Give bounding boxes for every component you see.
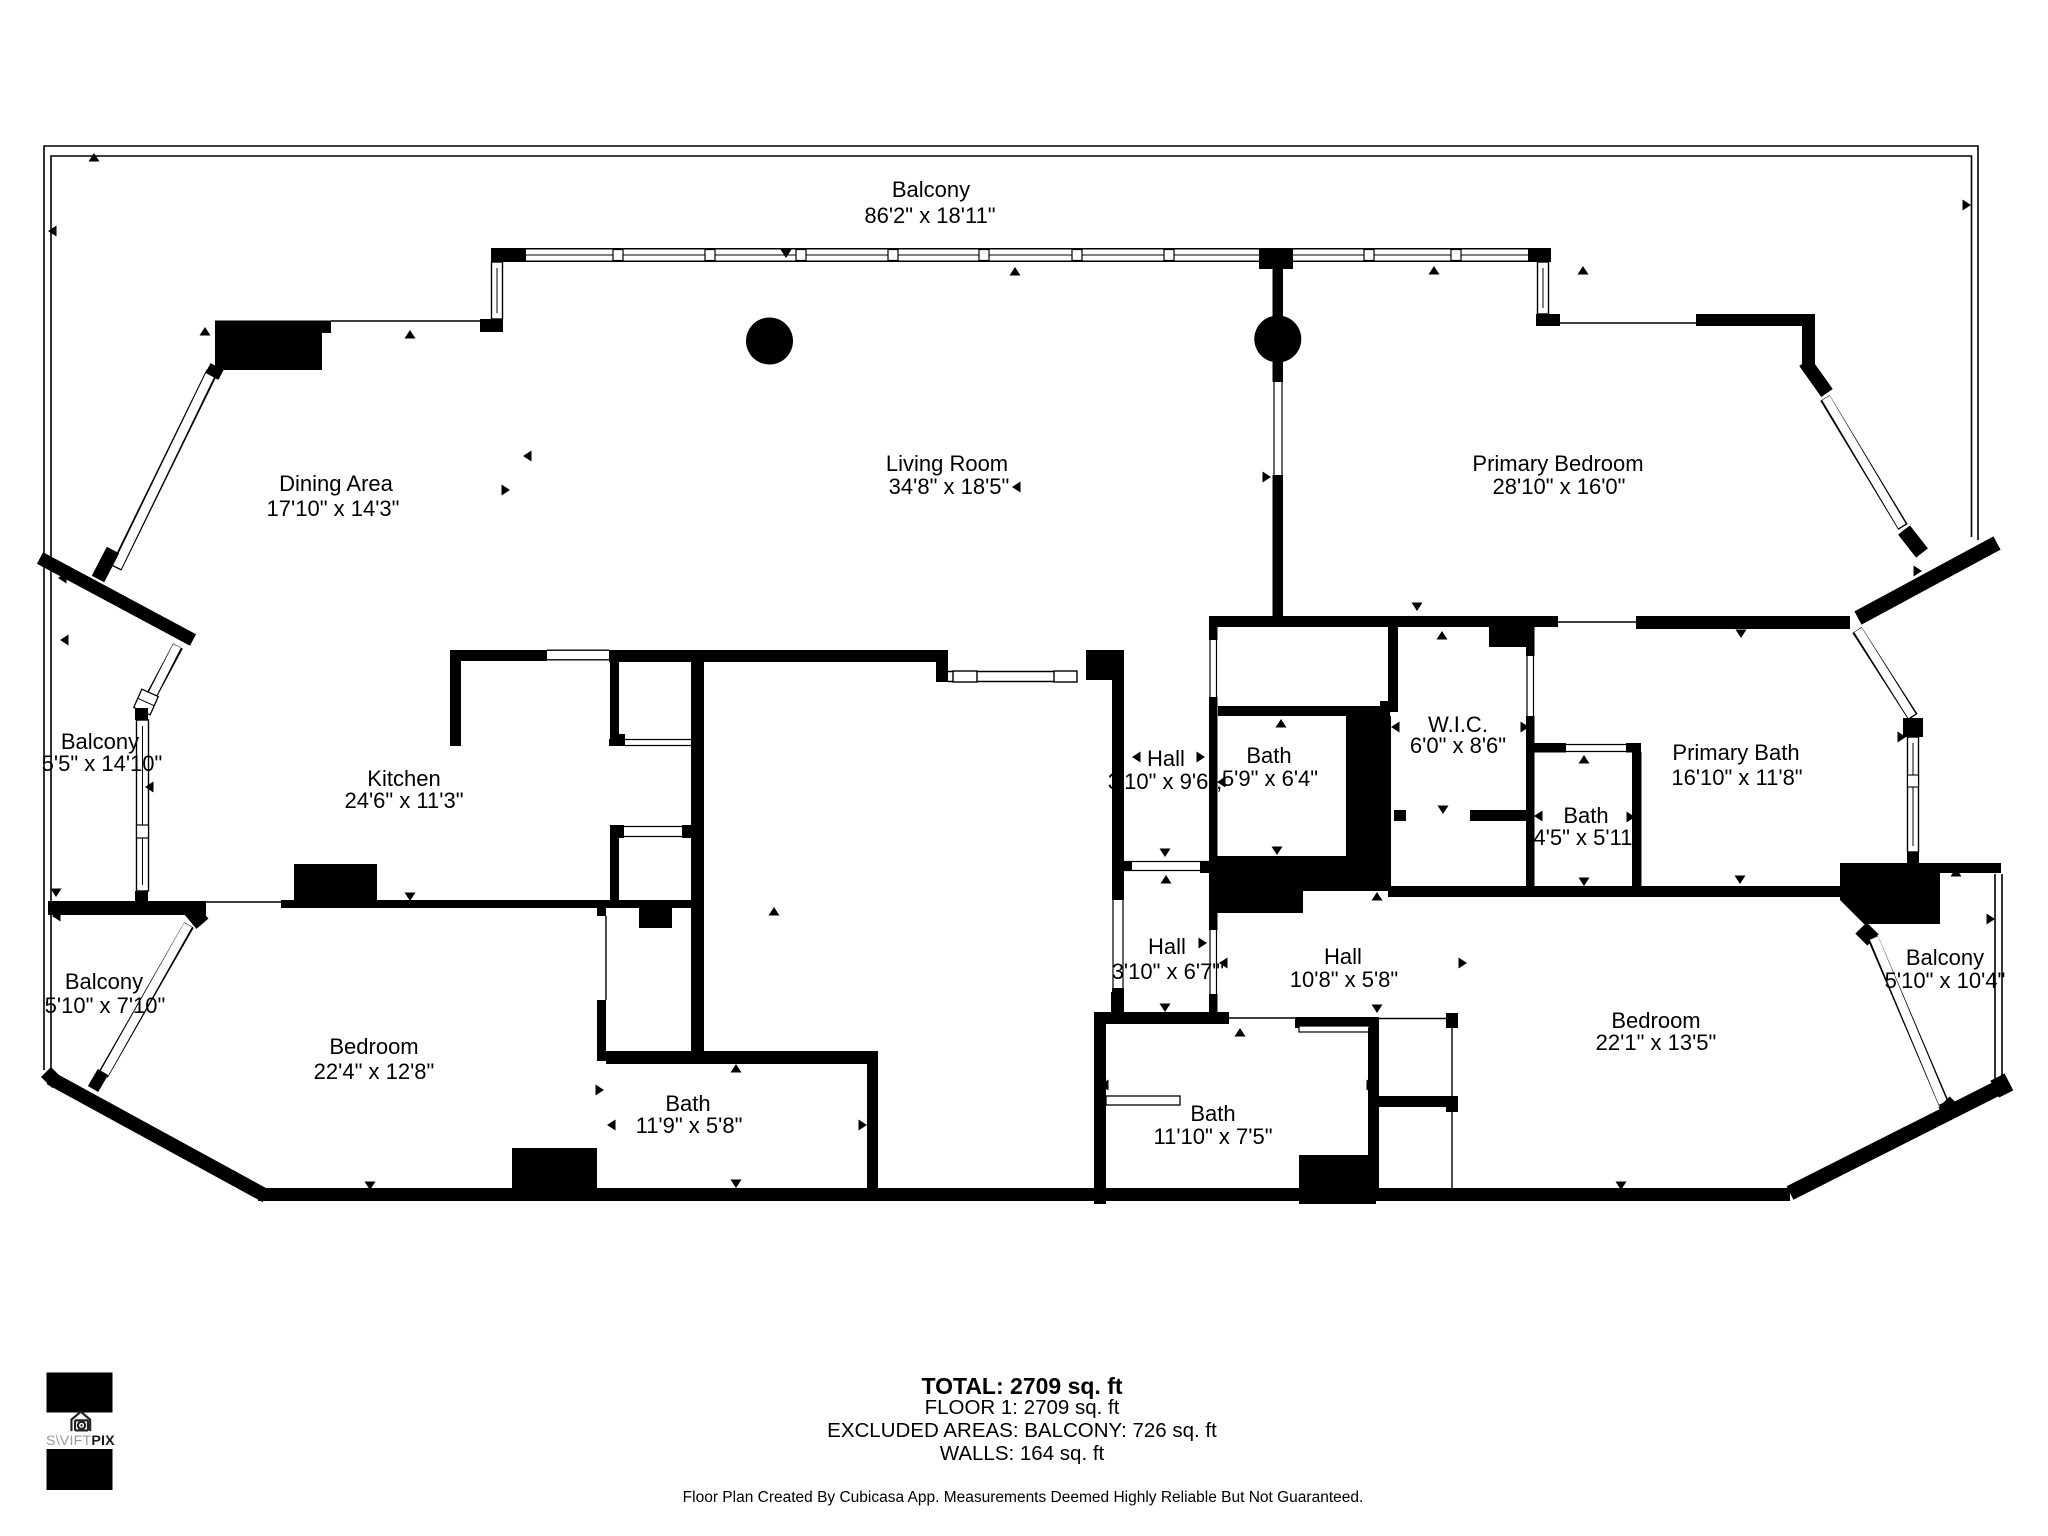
svg-text:86'2" x 18'11": 86'2" x 18'11" bbox=[864, 203, 995, 228]
svg-text:4'5" x 5'11': 4'5" x 5'11' bbox=[1533, 825, 1636, 850]
svg-text:5'10" x 10'4": 5'10" x 10'4" bbox=[1885, 968, 2006, 993]
svg-text:Bath: Bath bbox=[1190, 1101, 1235, 1126]
svg-text:22'1" x 13'5": 22'1" x 13'5" bbox=[1596, 1030, 1717, 1055]
svg-text:Hall: Hall bbox=[1147, 746, 1185, 771]
svg-text:Hall: Hall bbox=[1324, 944, 1362, 969]
svg-text:WALLS: 164 sq. ft: WALLS: 164 sq. ft bbox=[940, 1442, 1105, 1465]
svg-text:10'8" x 5'8": 10'8" x 5'8" bbox=[1290, 967, 1398, 992]
svg-text:28'10" x 16'0": 28'10" x 16'0" bbox=[1493, 474, 1626, 499]
svg-text:Balcony: Balcony bbox=[892, 177, 970, 202]
svg-text:6'0" x 8'6": 6'0" x 8'6" bbox=[1410, 733, 1506, 758]
svg-text:Living Room: Living Room bbox=[886, 451, 1008, 476]
svg-text:Bedroom: Bedroom bbox=[329, 1034, 418, 1059]
svg-text:Hall: Hall bbox=[1148, 934, 1186, 959]
svg-text:34'8" x 18'5": 34'8" x 18'5" bbox=[889, 474, 1010, 499]
svg-text:5'9" x 6'4": 5'9" x 6'4" bbox=[1222, 766, 1318, 791]
svg-text:24'6" x 11'3": 24'6" x 11'3" bbox=[344, 788, 463, 813]
svg-text:11'10" x 7'5": 11'10" x 7'5" bbox=[1153, 1124, 1272, 1149]
svg-text:5'10" x 7'10": 5'10" x 7'10" bbox=[45, 993, 166, 1018]
svg-text:S\VIFTPIX: S\VIFTPIX bbox=[46, 1433, 115, 1449]
svg-text:Balcony: Balcony bbox=[65, 969, 143, 994]
svg-text:Floor Plan Created By Cubicasa: Floor Plan Created By Cubicasa App. Meas… bbox=[683, 1489, 1364, 1506]
svg-text:Balcony: Balcony bbox=[1906, 945, 1984, 970]
svg-text:Bath: Bath bbox=[1246, 743, 1291, 768]
svg-text:16'10" x 11'8": 16'10" x 11'8" bbox=[1671, 765, 1802, 790]
svg-text:17'10" x 14'3": 17'10" x 14'3" bbox=[267, 496, 400, 521]
svg-text:11'9" x 5'8": 11'9" x 5'8" bbox=[636, 1113, 743, 1138]
svg-text:Primary Bath: Primary Bath bbox=[1672, 740, 1799, 765]
svg-text:22'4" x 12'8": 22'4" x 12'8" bbox=[314, 1059, 435, 1084]
svg-text:EXCLUDED AREAS: BALCONY: 726 s: EXCLUDED AREAS: BALCONY: 726 sq. ft bbox=[827, 1419, 1217, 1442]
svg-text:3'10" x 6'7"': 3'10" x 6'7"' bbox=[1112, 959, 1225, 984]
svg-text:3'10" x 9'6",: 3'10" x 9'6", bbox=[1108, 769, 1223, 794]
svg-text:FLOOR 1: 2709 sq. ft: FLOOR 1: 2709 sq. ft bbox=[925, 1396, 1120, 1419]
svg-text:5'5" x 14'10": 5'5" x 14'10" bbox=[42, 751, 163, 776]
svg-text:Primary Bedroom: Primary Bedroom bbox=[1472, 451, 1643, 476]
svg-text:Dining Area: Dining Area bbox=[279, 471, 394, 496]
